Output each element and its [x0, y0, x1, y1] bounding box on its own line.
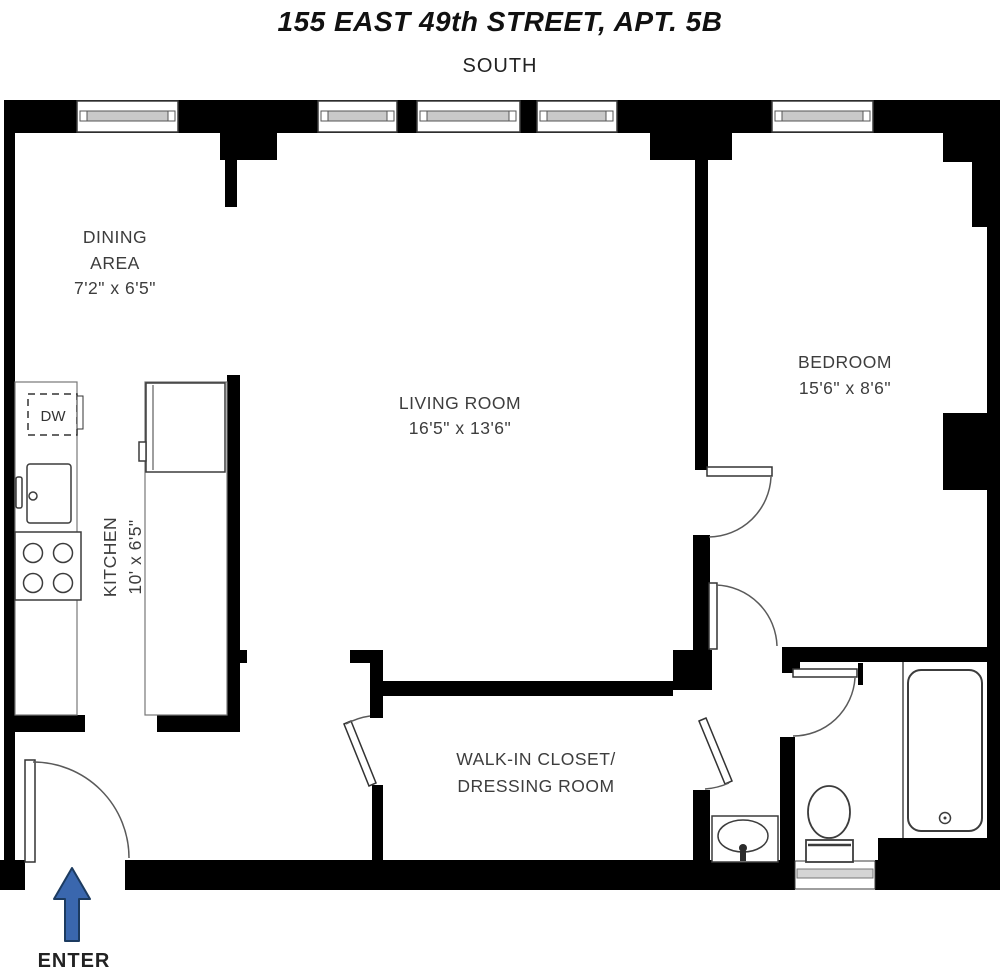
burner [24, 544, 43, 563]
wall-bath-door-stop [858, 663, 863, 685]
window-top-1 [77, 101, 178, 132]
wall-bedroom-top-bump [650, 133, 732, 160]
bathroom-door [793, 669, 857, 736]
wall-bedroom-partition [695, 160, 708, 470]
kitchen-label: KITCHEN [100, 517, 120, 597]
wall-kitchen-nub [240, 650, 247, 663]
wall-bottom [125, 860, 795, 890]
wall-left [4, 100, 15, 860]
entry-marker: ENTER [38, 868, 111, 972]
burner [54, 574, 73, 593]
bedroom-door [709, 583, 777, 649]
wall-vestibule-block [673, 650, 712, 690]
closet-label-2: DRESSING ROOM [457, 776, 614, 796]
window-top-3 [417, 101, 520, 132]
wall-counter-cap-right [157, 715, 240, 732]
dining-area-label: DINING [83, 227, 147, 247]
wall-toilet-room [780, 737, 795, 863]
bedroom-dims: 15'6" x 8'6" [799, 378, 891, 398]
living-room-dims: 16'5" x 13'6" [409, 418, 511, 438]
wall-under-tub [878, 838, 1000, 863]
column-dining [220, 133, 277, 160]
column-dining-stem [225, 160, 237, 207]
bedroom-label: BEDROOM [798, 352, 892, 372]
closet-door-right [699, 718, 732, 789]
wall-right-lower [987, 490, 1000, 890]
wall-closet-top [383, 681, 673, 696]
bathroom-sink [712, 816, 778, 862]
window-top-5 [772, 101, 873, 132]
wall-closet-left-lower [372, 785, 383, 860]
dishwasher: DW [28, 394, 83, 435]
wall-bedroom-bottom [782, 647, 1000, 662]
range-stove [15, 532, 81, 600]
kitchen-fixtures: DW [15, 382, 227, 715]
bathroom-window [795, 861, 875, 889]
enter-arrow-icon [54, 868, 90, 941]
wall-right-step1 [943, 125, 1000, 162]
floor-plan-svg: 155 EAST 49th STREET, APT. 5B SOUTH [0, 0, 1000, 976]
dishwasher-label: DW [41, 408, 67, 425]
closet-label: WALK-IN CLOSET/ [456, 749, 616, 769]
wall-sink-alcove [693, 790, 710, 863]
page-title: 155 EAST 49th STREET, APT. 5B [278, 6, 723, 37]
dining-area-label-2: AREA [90, 253, 140, 273]
burner [54, 544, 73, 563]
refrigerator [139, 383, 225, 472]
window-top-4 [537, 101, 617, 132]
floor-plan-page: 155 EAST 49th STREET, APT. 5B SOUTH [0, 0, 1000, 976]
bathtub [908, 670, 982, 831]
wall-closet-left-upper [370, 650, 383, 718]
kitchen-dims: 10' x 6'5" [125, 519, 145, 594]
enter-label: ENTER [38, 950, 111, 972]
living-room-label: LIVING ROOM [399, 393, 521, 413]
wall-counter-cap-left [13, 715, 85, 732]
burner [24, 574, 43, 593]
dining-area-dims: 7'2" x 6'5" [74, 278, 156, 298]
wall-bottom-right [875, 860, 1000, 890]
hallway-door [707, 467, 772, 537]
wall-right-bump [943, 413, 1000, 490]
closet-door-left [344, 716, 376, 786]
window-top-2 [318, 101, 397, 132]
bathroom-fixtures [712, 662, 982, 862]
entry-door [25, 760, 129, 862]
wall-right [987, 227, 1000, 413]
wall-right-step2 [972, 162, 1000, 227]
wall-kitchen [227, 375, 240, 715]
toilet [806, 786, 853, 862]
wall-left-corner [0, 860, 25, 890]
orientation-label: SOUTH [463, 55, 538, 77]
wall-hallway [693, 535, 710, 650]
